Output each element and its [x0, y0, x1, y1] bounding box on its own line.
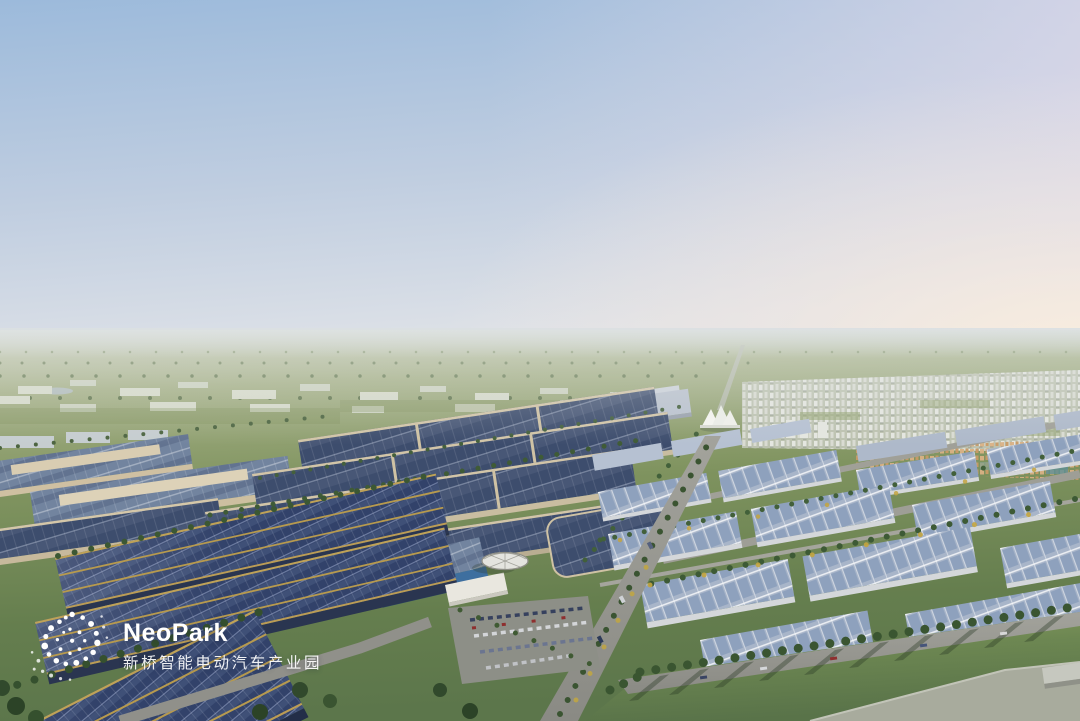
logo-subtitle: 新桥智能电动汽车产业园	[123, 651, 322, 673]
neopark-logo: NeoPark 新桥智能电动汽车产业园	[30, 604, 322, 688]
aerial-render: NeoPark 新桥智能电动汽车产业园	[0, 0, 1080, 721]
dot-cluster-logo-icon	[30, 604, 110, 688]
sky	[0, 0, 1080, 352]
logo-wordmark: NeoPark	[123, 619, 322, 647]
sun-glow	[300, 0, 1080, 352]
atmosphere-haze	[0, 330, 1080, 445]
